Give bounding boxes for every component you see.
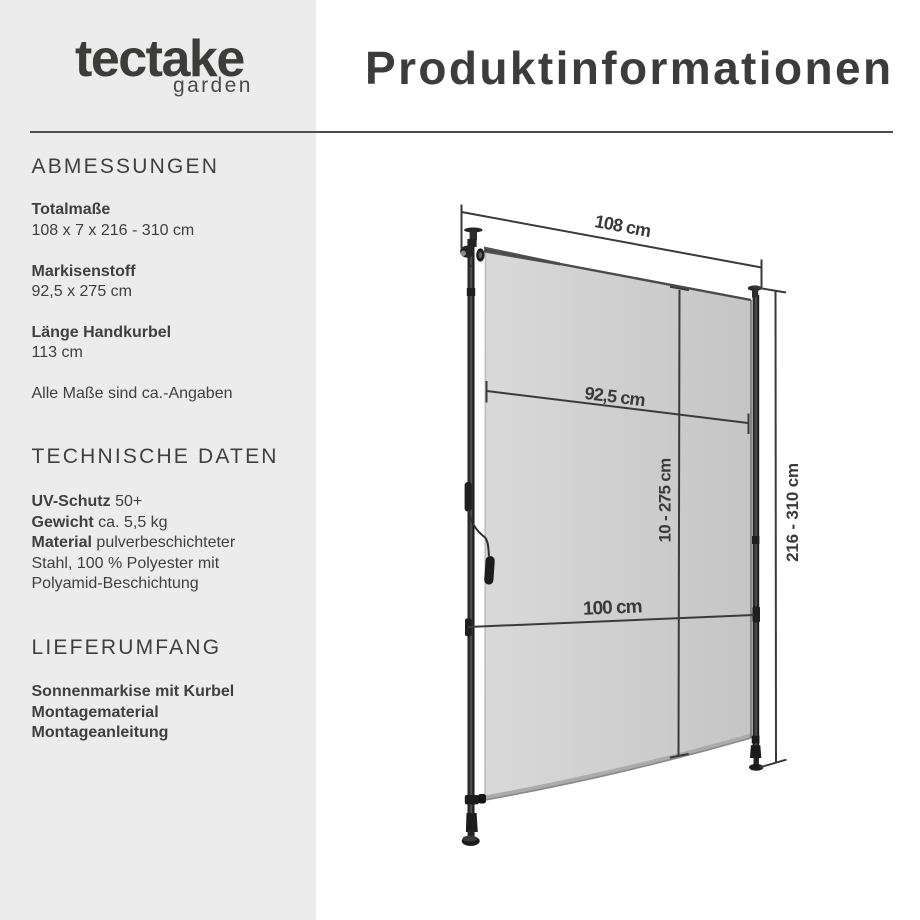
svg-text:10 - 275 cm: 10 - 275 cm	[656, 458, 675, 543]
svg-text:216 - 310 cm: 216 - 310 cm	[783, 463, 802, 562]
svg-text:100 cm: 100 cm	[583, 596, 642, 619]
svg-text:108 cm: 108 cm	[593, 211, 652, 241]
